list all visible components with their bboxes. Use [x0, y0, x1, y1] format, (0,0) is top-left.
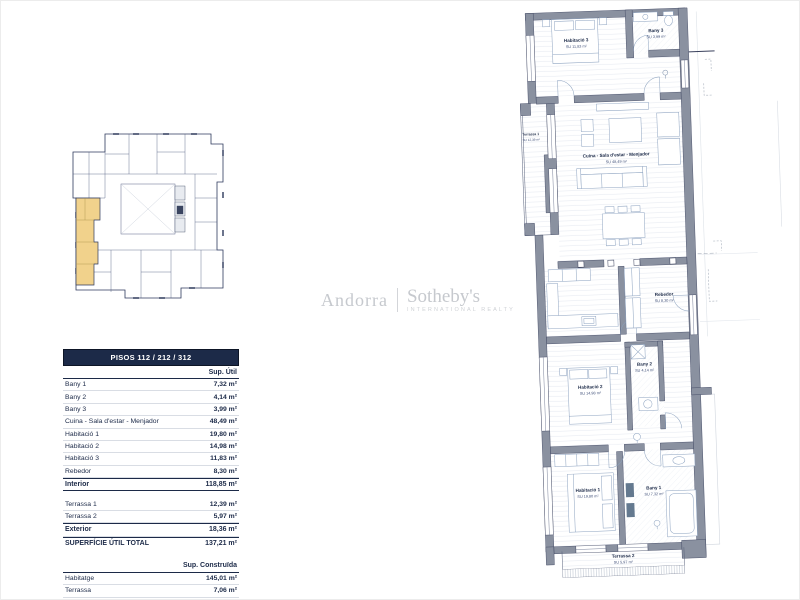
table-title: PISOS 112 / 212 / 312	[63, 349, 239, 366]
table-row-exterior: Exterior18,36 m²	[63, 523, 239, 536]
svg-text:SU 3,99 m²: SU 3,99 m²	[646, 35, 666, 40]
table-row-bany2: Bany 24,14 m²	[63, 391, 239, 403]
row-value: 19,80 m²	[210, 431, 237, 438]
row-label: Habitació 1	[65, 431, 99, 438]
toilet-icon	[664, 15, 672, 25]
stair-core	[175, 186, 185, 232]
armchair-icon	[657, 112, 680, 137]
column-header-sup-construida: Sup. Construïda	[63, 560, 239, 573]
agency-logo: Andorra Sotheby's INTERNATIONAL REALTY	[321, 287, 515, 314]
row-label: Rebedor	[65, 468, 91, 475]
cabinet-icon	[548, 268, 590, 281]
row-label: Bany 3	[65, 406, 86, 413]
table-row-habitatge: Habitatge145,01 m²	[63, 573, 239, 585]
row-value: 3,99 m²	[214, 406, 237, 413]
table-row-habitacio3: Habitació 311,83 m²	[63, 453, 239, 465]
room-label-terrassa2: Terrassa 2	[612, 553, 635, 559]
kitchen-island-icon	[609, 118, 642, 143]
table-row-terrassa2: Terrassa 25,97 m²	[63, 511, 239, 523]
sink-icon	[673, 456, 685, 464]
table-row-interior: Interior118,85 m²	[63, 478, 239, 491]
svg-text:SU 7,32 m²: SU 7,32 m²	[644, 492, 664, 497]
logo-wordmark: Sotheby's INTERNATIONAL REALTY	[407, 287, 515, 314]
logo-name: Sotheby's	[407, 287, 515, 306]
row-value: 118,85 m²	[205, 481, 237, 488]
row-value: 18,36 m²	[209, 526, 237, 533]
apartment-floor-plan: Habitació 3 SU 11,83 m² Bany 3 SU 3,99 m…	[513, 0, 800, 588]
room-label-terrassa1: Terrassa 1	[522, 132, 539, 137]
lamp-icon	[654, 520, 660, 526]
table-row-cuina: Cuina - Sala d'estar - Menjador48,49 m²	[63, 416, 239, 428]
column-header-sup-util: Sup. Útil	[63, 366, 239, 379]
svg-text:SU 14,98 m²: SU 14,98 m²	[580, 391, 602, 396]
column-header-label: Sup. Útil	[209, 369, 237, 376]
svg-text:SU 19,80 m²: SU 19,80 m²	[577, 494, 599, 499]
row-label: Habitatge	[65, 575, 94, 582]
table-row-bany1: Bany 17,32 m²	[63, 379, 239, 391]
table-row-useful-total: SUPERFÍCIE ÚTIL TOTAL137,21 m²	[63, 537, 239, 549]
svg-text:SU 8,30 m²: SU 8,30 m²	[655, 298, 675, 303]
row-value: 7,32 m²	[214, 381, 237, 388]
room-label-bany1: Bany 1	[646, 485, 662, 491]
svg-text:SU 48,49 m²: SU 48,49 m²	[606, 160, 628, 165]
row-value: 5,97 m²	[214, 513, 237, 520]
row-value: 14,98 m²	[210, 443, 237, 450]
table-gap	[63, 491, 239, 498]
row-label: Cuina - Sala d'estar - Menjador	[65, 418, 159, 425]
lamp-icon	[633, 433, 640, 440]
logo-brand: Andorra	[321, 290, 388, 311]
room-label-habitacio3: Habitació 3	[564, 37, 589, 43]
table-gap	[63, 549, 239, 560]
room-label-habitacio2: Habitació 2	[578, 384, 603, 390]
table-row-habitacio1: Habitació 119,80 m²	[63, 429, 239, 441]
column-header-label: Sup. Construïda	[183, 562, 237, 569]
room-label-bany2: Bany 2	[637, 361, 653, 367]
row-value: 145,01 m²	[206, 575, 237, 582]
svg-text:SU 12,39 m²: SU 12,39 m²	[523, 138, 541, 143]
building-overview-plan	[63, 122, 233, 308]
floorplan-brochure-page: Andorra Sotheby's INTERNATIONAL REALTY P…	[0, 0, 800, 600]
row-value: 137,21 m²	[205, 540, 237, 547]
room-label-habitacio1: Habitació 1	[575, 487, 600, 493]
row-label: Terrassa 2	[65, 513, 97, 520]
row-label: Bany 2	[65, 394, 86, 401]
row-label: Habitació 3	[65, 455, 99, 462]
surface-table: PISOS 112 / 212 / 312 Sup. Útil Bany 17,…	[63, 349, 239, 600]
row-label: Exterior	[65, 526, 91, 533]
table-row-terrassa-built1: Terrassa7,06 m²	[63, 585, 239, 597]
row-value: 4,14 m²	[214, 394, 237, 401]
svg-text:SU 11,83 m²: SU 11,83 m²	[566, 44, 588, 49]
row-value: 48,49 m²	[210, 418, 237, 425]
sink-icon	[644, 400, 653, 409]
row-label: Bany 1	[65, 381, 86, 388]
row-label: Interior	[65, 481, 89, 488]
row-label: Terrassa 1	[65, 501, 97, 508]
floor-plan-drawing: Habitació 3 SU 11,83 m² Bany 3 SU 3,99 m…	[513, 0, 800, 588]
sideboard-icon	[596, 102, 648, 111]
row-value: 8,30 m²	[214, 468, 237, 475]
table-row-terrassa1: Terrassa 112,39 m²	[63, 498, 239, 510]
courtyard	[121, 184, 175, 234]
row-label: Terrassa	[65, 587, 91, 594]
table-row-bany3: Bany 33,99 m²	[63, 404, 239, 416]
dining-table-icon	[602, 212, 645, 238]
party-wall-stub	[691, 387, 711, 395]
row-label: SUPERFÍCIE ÚTIL TOTAL	[65, 540, 149, 547]
row-value: 7,06 m²	[214, 587, 237, 594]
row-value: 11,83 m²	[210, 455, 237, 462]
svg-text:SU 5,97 m²: SU 5,97 m²	[614, 560, 634, 565]
row-label: Habitació 2	[65, 443, 99, 450]
table-row-rebedor: Rebedor8,30 m²	[63, 466, 239, 478]
svg-text:SU 4,14 m²: SU 4,14 m²	[635, 368, 655, 373]
logo-tagline: INTERNATIONAL REALTY	[407, 308, 515, 314]
row-value: 12,39 m²	[210, 501, 237, 508]
room-label-bany3: Bany 3	[648, 28, 664, 34]
room-label-rebedor: Rebedor	[655, 291, 674, 297]
table-row-habitacio2: Habitació 214,98 m²	[63, 441, 239, 453]
logo-divider	[397, 288, 398, 312]
